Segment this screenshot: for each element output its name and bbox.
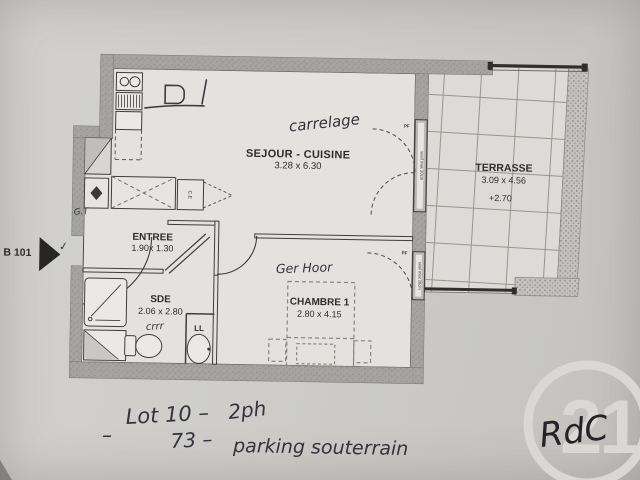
room-name-sejour: SEJOUR - CUISINE [246,148,351,162]
cooktop [116,92,142,109]
room-dims-entree: 1.90x 1.30 [131,243,173,254]
wall-west-upper [99,54,113,138]
room-name-entree: ENTREE [132,232,173,244]
hw-dash: – [102,423,112,447]
partition [212,275,218,364]
stippled-wall-bottom [515,277,579,296]
room-name-terrasse: TERRASSE [475,162,532,175]
hw-gt: G.T [74,207,90,218]
hw-ger-floor: Ger Hoor [276,259,334,276]
partition [83,268,163,273]
hw-crrr: crrr [146,321,165,333]
photo-corner-smudge [0,460,12,480]
wall-west-mid [72,138,86,236]
floorplan: seuil max 20cm seuil max 20cm [1,53,589,387]
railing-post [488,62,493,70]
hw-lot-value: 2ph [227,396,267,424]
window-note: seuil max 20cm [419,151,425,181]
railing-top [491,65,587,67]
pf-label: PF [402,250,408,255]
hw-parking-number: 73 – [170,427,213,453]
entrance-arrow-icon [39,237,61,271]
floorplan-photo: 21 [0,0,640,480]
railing-post [582,64,588,72]
hw-level-rdc: RdC [537,408,611,456]
room-dims-terrasse: 3.09 x 4.56 [481,175,526,186]
window-note: seuil max 20cm [417,262,422,291]
toilet-bowl [136,334,162,357]
railing-bottom [423,289,515,291]
partition [168,220,218,225]
hw-lot: Lot 10 – [125,401,210,429]
wall-step [73,126,99,138]
floorplan-canvas: 21 [0,0,640,480]
room-name-chambre: CHAMBRE 1 [290,296,350,308]
washing-machine-label: LL [194,324,204,333]
partition [214,221,219,277]
chambre-french-window: seuil max 20cm [412,252,425,300]
hw-checkmark: ✓ [58,239,69,253]
room-name-sde: SDE [150,294,171,305]
wall-east-a [415,74,429,120]
room-dims-sejour: 3.28 x 6.30 [274,160,321,172]
kitchen-appliance [116,111,142,129]
room-dims-sde: 2.06 x 2.80 [138,306,183,317]
railing-post [512,287,517,294]
toilet-tank [125,336,136,356]
unit-label: B 101 [3,246,31,258]
sejour-french-window: seuil max 20cm [414,120,428,212]
wall-west-lower [69,266,83,362]
wall-east-b [412,212,426,252]
terrasse-level: +2.70 [489,193,512,203]
hw-parking-text: parking souterrain [232,435,409,460]
ce-label: C.E [186,190,192,199]
room-dims-chambre: 2.80 x 4.15 [297,309,342,320]
wall-east-c [410,300,424,368]
pf-label: PF [404,123,410,128]
washbasin [187,334,211,363]
